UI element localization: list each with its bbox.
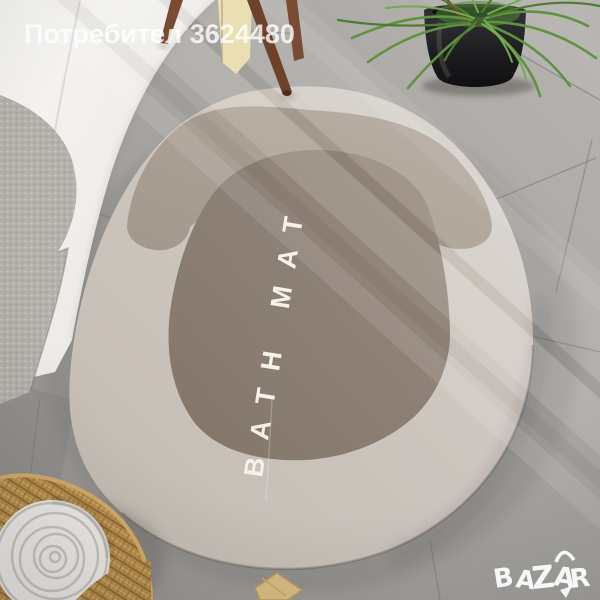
user-watermark: Потребител 3624480 (24, 19, 295, 49)
bathroom-scene: BATH MAT (0, 0, 600, 600)
logo-letter-r: R (568, 563, 592, 595)
vignette (0, 0, 600, 600)
product-photo: BATH MAT (0, 0, 600, 600)
